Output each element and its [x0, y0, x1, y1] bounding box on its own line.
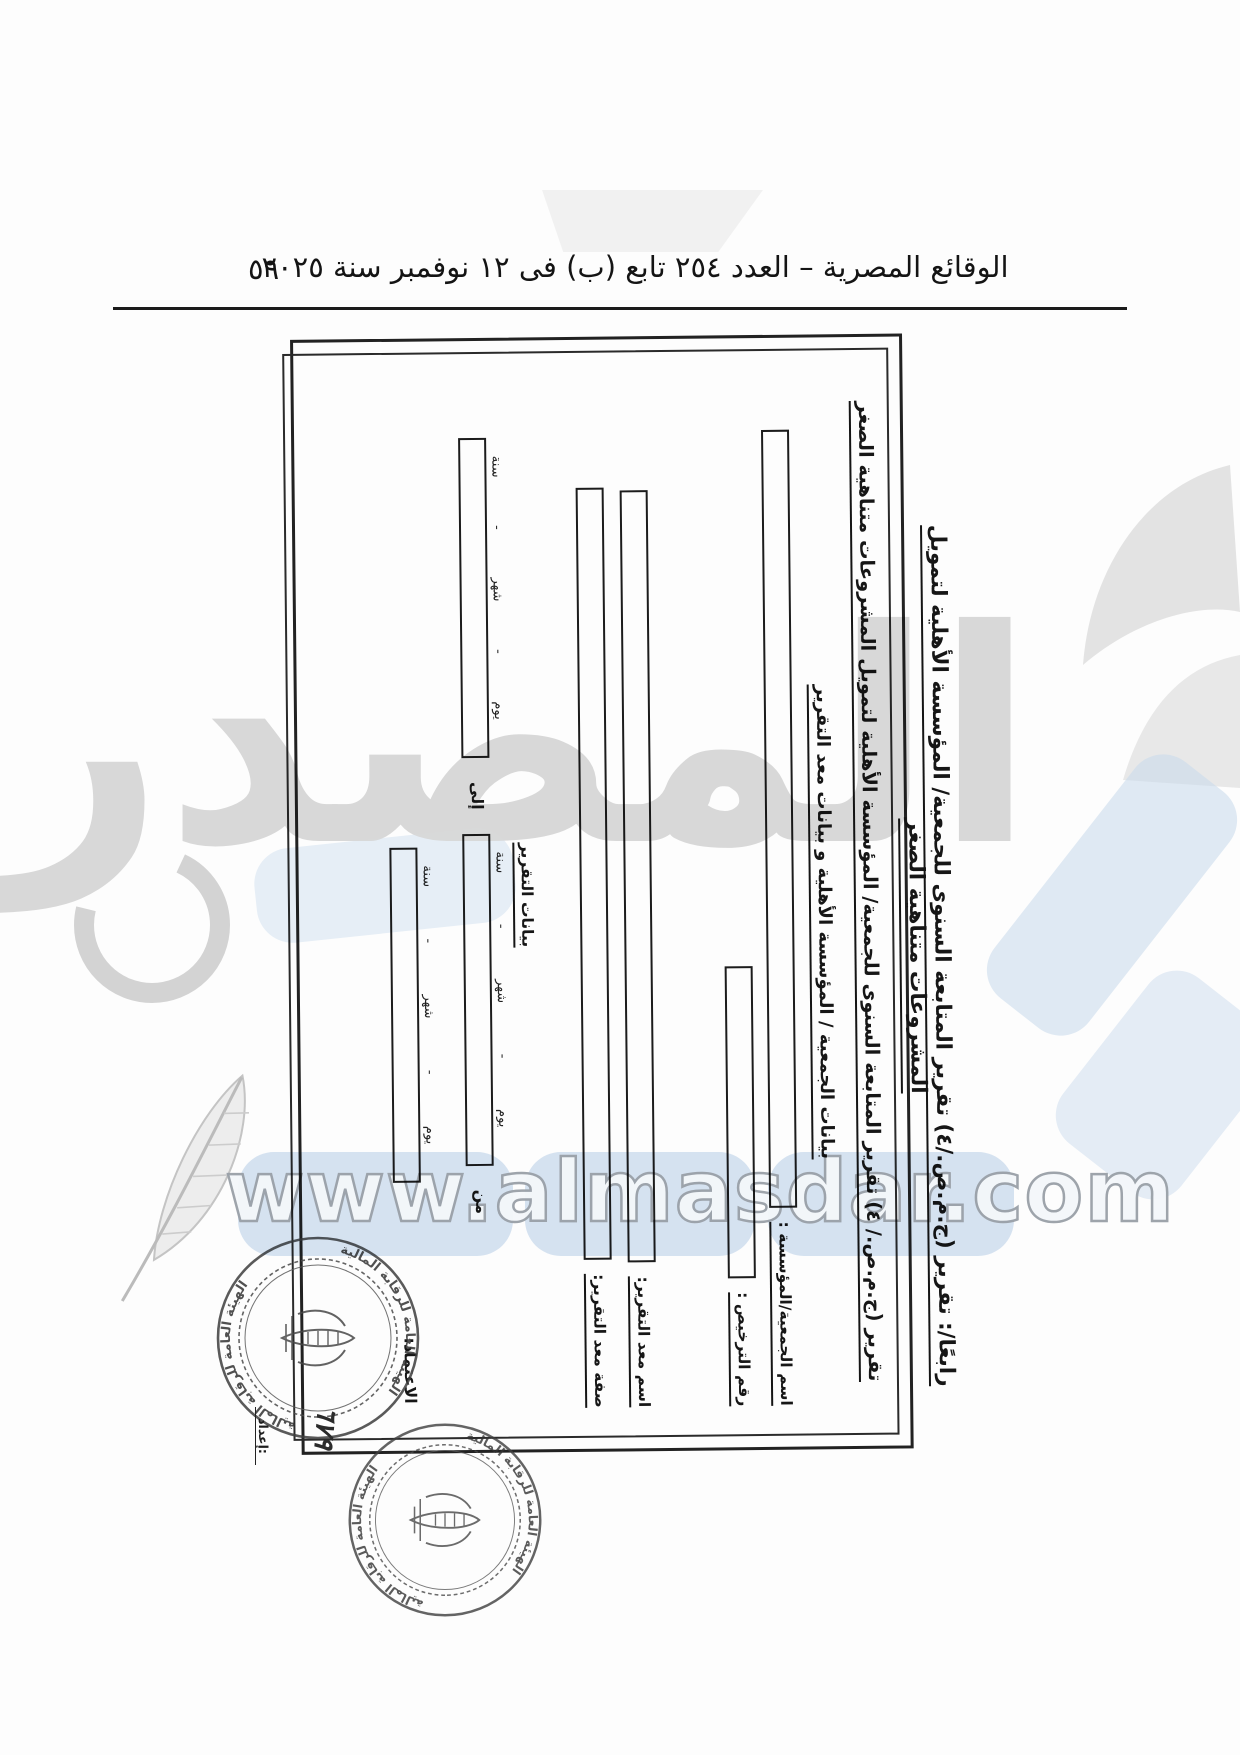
gazette-header-title: الوقائع المصرية – العدد ٢٥٤ تابع (ب) فى …	[240, 250, 1030, 284]
to-date-group: يوم - شهر - سنة	[458, 438, 506, 758]
handwritten-number: ٦٧٩	[307, 1387, 344, 1468]
field-row-preparer-title: صفة معد التقرير:	[574, 381, 613, 1408]
section-association-data-heading: بيانات الجمعية / المؤسسة الأهلية و بيانا…	[808, 378, 840, 1405]
to-date-parts: يوم - شهر - سنة	[486, 438, 506, 758]
field-row-license-number: رقم الترخيص :	[718, 379, 757, 1406]
license-number-field	[725, 966, 756, 1278]
blue-watermark-slab	[972, 740, 1240, 1050]
blue-watermark-slab	[1041, 956, 1240, 1214]
preparer-title-field	[576, 488, 612, 1260]
field-row-preparer-name: اسم معد التقرير:	[618, 380, 657, 1407]
form-heading: تقرير (ج.م.ص./ ٤) تقرير المتابعة السنوى …	[853, 378, 887, 1405]
logo-ring-watermark	[62, 835, 242, 1015]
page-number: ٥٩	[248, 252, 279, 286]
to-date-field	[458, 438, 489, 758]
official-stamp-2: الهيئة العامة للرقابة المالية الهيئة الع…	[345, 1420, 545, 1620]
association-name-label: اسم الجمعية/المؤسسة :	[769, 1221, 795, 1405]
gazette-scanned-page: الوقائع المصرية – العدد ٢٥٤ تابع (ب) فى …	[0, 0, 1240, 1755]
from-date-parts: يوم - شهر - سنة	[490, 833, 510, 1165]
license-number-label: رقم الترخيص :	[728, 1292, 753, 1406]
from-date-group: يوم - شهر - سنة	[462, 833, 510, 1165]
header-rule	[113, 307, 1127, 310]
from-date-field	[462, 834, 493, 1166]
association-name-field	[761, 429, 797, 1207]
field-row-association-name: اسم الجمعية/المؤسسة :	[760, 379, 799, 1406]
from-label: من	[466, 1190, 491, 1215]
prepared-label: إعداد:	[255, 1407, 271, 1465]
to-label: إلى	[462, 782, 487, 810]
section-report-data-heading: بيانات التقرير	[512, 381, 541, 1408]
approval-date-parts: يوم - شهر - سنة	[417, 847, 438, 1182]
corner-swirl-watermark	[1005, 450, 1240, 790]
svg-text:الهيئة العامة للرقابة المالية: الهيئة العامة للرقابة المالية	[350, 1463, 425, 1612]
approval-date-field	[389, 847, 421, 1182]
stamp-eagle-emblem	[282, 1311, 354, 1366]
preparer-name-label: اسم معد التقرير:	[628, 1276, 653, 1407]
top-watermark-shape	[535, 190, 770, 252]
preparer-name-field	[620, 490, 656, 1262]
stamp-eagle-emblem	[411, 1494, 480, 1546]
preparer-title-label: صفة معد التقرير:	[584, 1274, 609, 1408]
approval-date-group: يوم - شهر - سنة	[389, 847, 438, 1182]
svg-text:الهيئة العامة للرقابة المالية: الهيئة العامة للرقابة المالية	[465, 1428, 540, 1577]
report-period-row: من يوم - شهر - سنة إلى	[457, 382, 511, 1214]
